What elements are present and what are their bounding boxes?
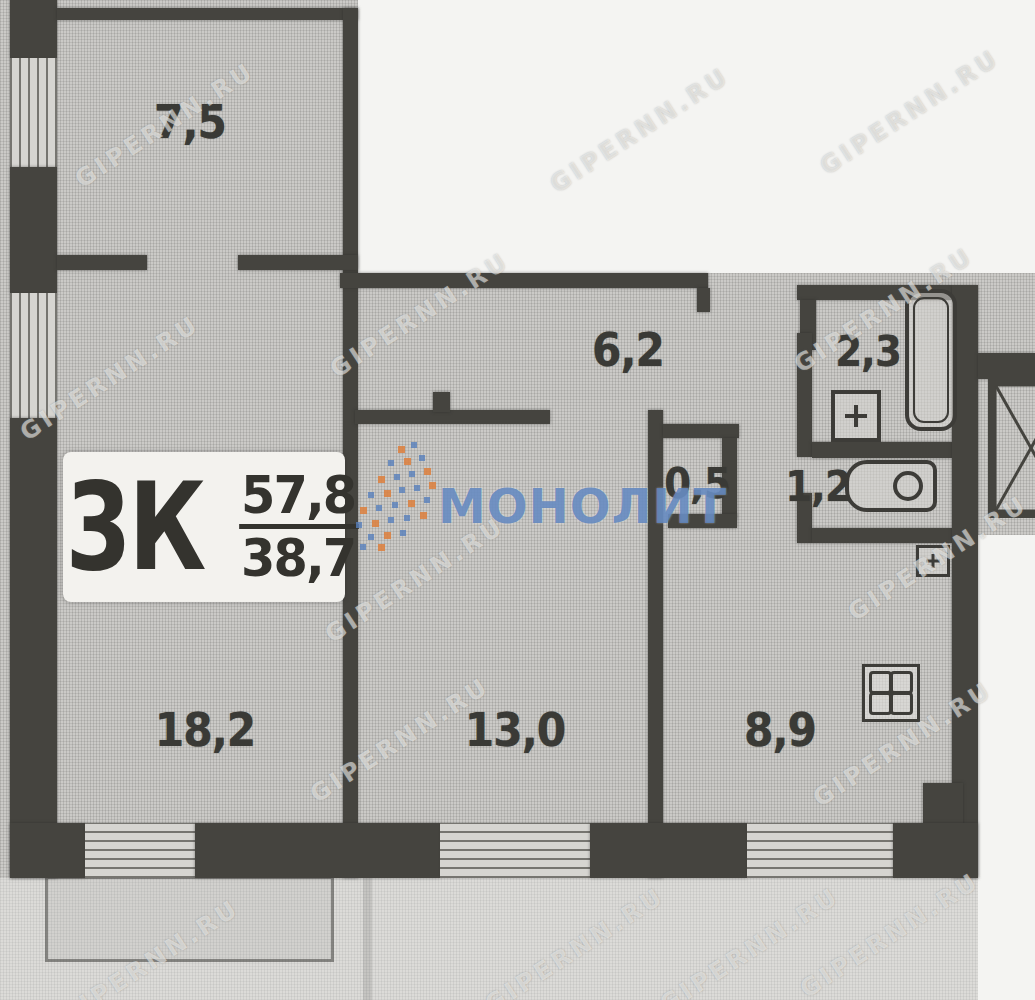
- bath-sink-icon: [831, 390, 881, 442]
- wall: [10, 0, 57, 58]
- wall: [57, 255, 147, 270]
- window-kitchen: [747, 823, 893, 878]
- wall: [697, 288, 710, 312]
- wall: [590, 823, 747, 878]
- wall: [57, 8, 358, 20]
- wall: [195, 823, 440, 878]
- room-area-label: 18,2: [155, 703, 256, 757]
- room-area-label: 6,2: [592, 323, 664, 377]
- wall: [978, 353, 1035, 379]
- toilet-bowl-icon: [845, 460, 937, 512]
- total-area-value: 57,8: [239, 469, 359, 529]
- wall: [10, 418, 57, 878]
- floor-plan-scan: 7,5 6,2 2,3 0,5 1,2 18,2 13,0 8,9 3К 57,…: [0, 0, 1035, 1000]
- wall: [355, 410, 550, 424]
- apartment-info-sticker: 3К 57,8 38,7: [63, 452, 345, 602]
- living-area-value: 38,7: [239, 529, 357, 586]
- wall: [663, 424, 739, 438]
- gipernn-watermark: GIPERNN.RU: [70, 57, 260, 194]
- wall-shadow-line: [363, 878, 372, 1000]
- wall: [812, 442, 952, 458]
- wall: [812, 528, 952, 543]
- monolit-logo-icon: [348, 440, 452, 552]
- apartment-type-label: 3К: [65, 466, 203, 588]
- wall: [340, 273, 708, 288]
- area-fraction: 57,8 38,7: [236, 469, 362, 586]
- stove-icon: [862, 664, 920, 722]
- wall: [10, 167, 57, 293]
- wall: [10, 823, 85, 878]
- window-left-top: [10, 58, 57, 167]
- bathtub-icon: [905, 289, 957, 431]
- room-area-label: 1,2: [785, 462, 851, 511]
- wall: [433, 392, 450, 412]
- wall: [238, 255, 358, 270]
- window-room-13: [440, 823, 590, 878]
- scan-white-top-right: [358, 0, 1035, 273]
- window-room-18: [85, 823, 195, 878]
- scan-white-bottom-right: [978, 535, 1035, 1000]
- room-area-label: 13,0: [465, 703, 566, 757]
- room-area-label: 8,9: [744, 703, 816, 757]
